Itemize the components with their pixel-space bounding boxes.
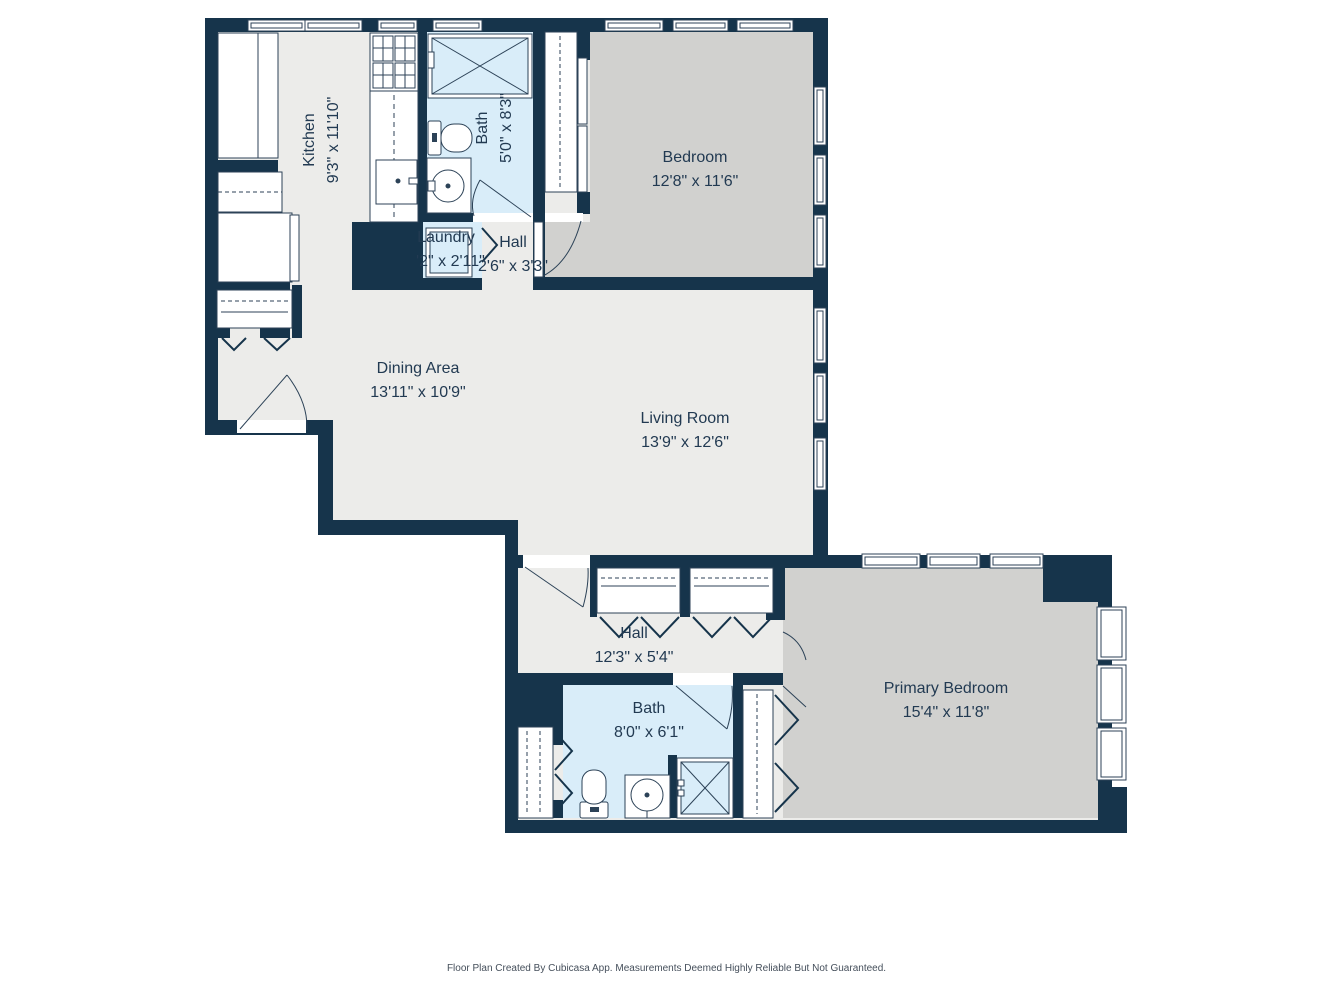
kitchen-faucet [409,178,418,184]
wall [205,18,218,433]
wall [577,192,590,214]
room-label-bedroom: Bedroom 12'8" x 11'6" [652,146,739,194]
window [605,20,793,31]
closet-sliding-panel [578,58,587,124]
room-name: Hall [478,231,548,255]
wall [292,285,302,338]
cabinet [218,33,278,158]
wall [217,328,230,338]
window [862,554,1043,568]
wall [518,685,563,727]
room-dims: 15'4" x 11'8" [884,701,1008,725]
wall [518,673,673,685]
toilet [428,121,472,155]
room-dims: 13'11" x 10'9" [370,381,465,405]
room-name: Hall [595,622,674,646]
room-label-hall-upper: Hall 2'6" x 3'3" [478,231,548,279]
toilet [580,770,608,818]
wall [205,282,290,290]
wall [505,555,523,568]
wall [577,32,590,60]
wall [505,820,1127,833]
wall [733,685,743,818]
shower-faucet [678,790,684,796]
room-name: Bath [614,697,684,721]
room-name: Bath [471,93,495,163]
vanity-faucet [428,181,435,191]
room-label-primary-bedroom: Primary Bedroom 15'4" x 11'8" [884,677,1008,725]
window [248,20,362,31]
shower-faucet [428,52,434,68]
window [1097,607,1126,780]
shower-faucet [678,780,684,786]
wall [352,278,482,290]
stove [370,33,418,91]
room-dims: 12'8" x 11'6" [652,170,739,194]
room-dims: 2'6" x 3'3" [478,255,548,279]
window [814,308,826,490]
room-name: Kitchen [298,97,322,184]
wall [533,277,828,290]
wall [533,32,545,222]
room-name: Primary Bedroom [884,677,1008,701]
room-name: Dining Area [370,357,465,381]
closet-door-panel [290,215,299,281]
wall [418,32,427,222]
closet-sliding-panel [578,126,587,192]
footer-disclaimer: Floor Plan Created By Cubicasa App. Meas… [0,963,1333,974]
room-label-living-room: Living Room 13'9" x 12'6" [641,407,730,455]
room-dims: 9'3" x 11'10" [322,97,346,184]
room-dims: 12'3" x 5'4" [595,646,674,670]
room-label-bath-upper: Bath 5'0" x 8'3" [471,93,519,163]
room-label-hall-lower: Hall 12'3" x 5'4" [595,622,674,670]
wall [1098,787,1127,833]
room-name: Living Room [641,407,730,431]
room-label-kitchen: Kitchen 9'3" x 11'10" [298,97,346,184]
wall [318,520,518,535]
wall [733,673,783,685]
room-dims: 13'9" x 12'6" [641,431,730,455]
room-label-bath-lower: Bath 8'0" x 6'1" [614,697,684,745]
wall [318,420,333,535]
room-label-dining-area: Dining Area 13'11" x 10'9" [370,357,465,405]
wall [418,213,473,222]
wall [680,562,690,617]
room-dims: 5'0" x 8'3" [495,93,519,163]
wall [352,222,423,282]
wall [205,160,278,172]
room-name: Bedroom [652,146,739,170]
closet-kitchen [218,213,292,282]
room-dims: 8'0" x 6'1" [614,721,684,745]
floor-plan: Kitchen 9'3" x 11'10" Bath 5'0" x 8'3" B… [0,0,1333,1000]
wall [260,328,290,338]
wall [590,562,597,617]
window [814,87,826,268]
